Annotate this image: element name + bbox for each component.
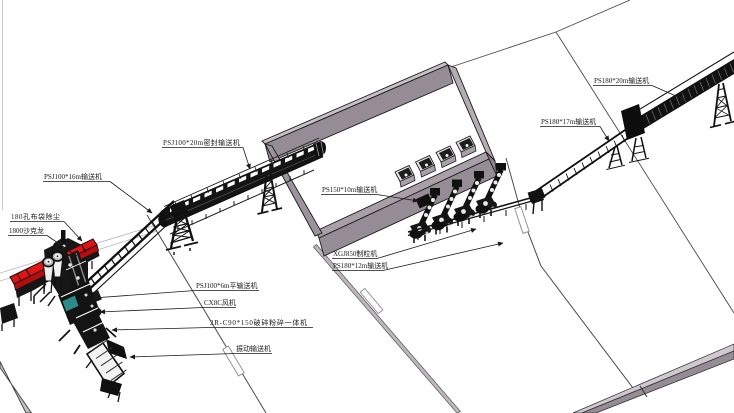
- svg-text:CX8C风机: CX8C风机: [204, 298, 236, 307]
- svg-text:2R-C90*150破碎粉碎一体机: 2R-C90*150破碎粉碎一体机: [210, 318, 308, 327]
- svg-text:PS180*20m输送机: PS180*20m输送机: [594, 76, 649, 85]
- svg-text:XGJ850制粒机: XGJ850制粒机: [333, 249, 377, 258]
- svg-text:PSJ100*6m平输送机: PSJ100*6m平输送机: [196, 281, 257, 290]
- svg-text:PSJ100*16m输送机: PSJ100*16m输送机: [44, 172, 102, 181]
- svg-text:PSJ100*20m密封输送机: PSJ100*20m密封输送机: [163, 138, 240, 147]
- svg-text:PS180*12m输送机: PS180*12m输送机: [333, 261, 388, 270]
- svg-text:振动输送机: 振动输送机: [236, 344, 271, 353]
- svg-text:PS150*10m输送机: PS150*10m输送机: [322, 185, 377, 194]
- svg-text:1800沙克龙: 1800沙克龙: [9, 226, 44, 235]
- svg-text:180孔布袋除尘: 180孔布袋除尘: [11, 212, 61, 221]
- svg-text:PS180*17m输送机: PS180*17m输送机: [541, 117, 596, 126]
